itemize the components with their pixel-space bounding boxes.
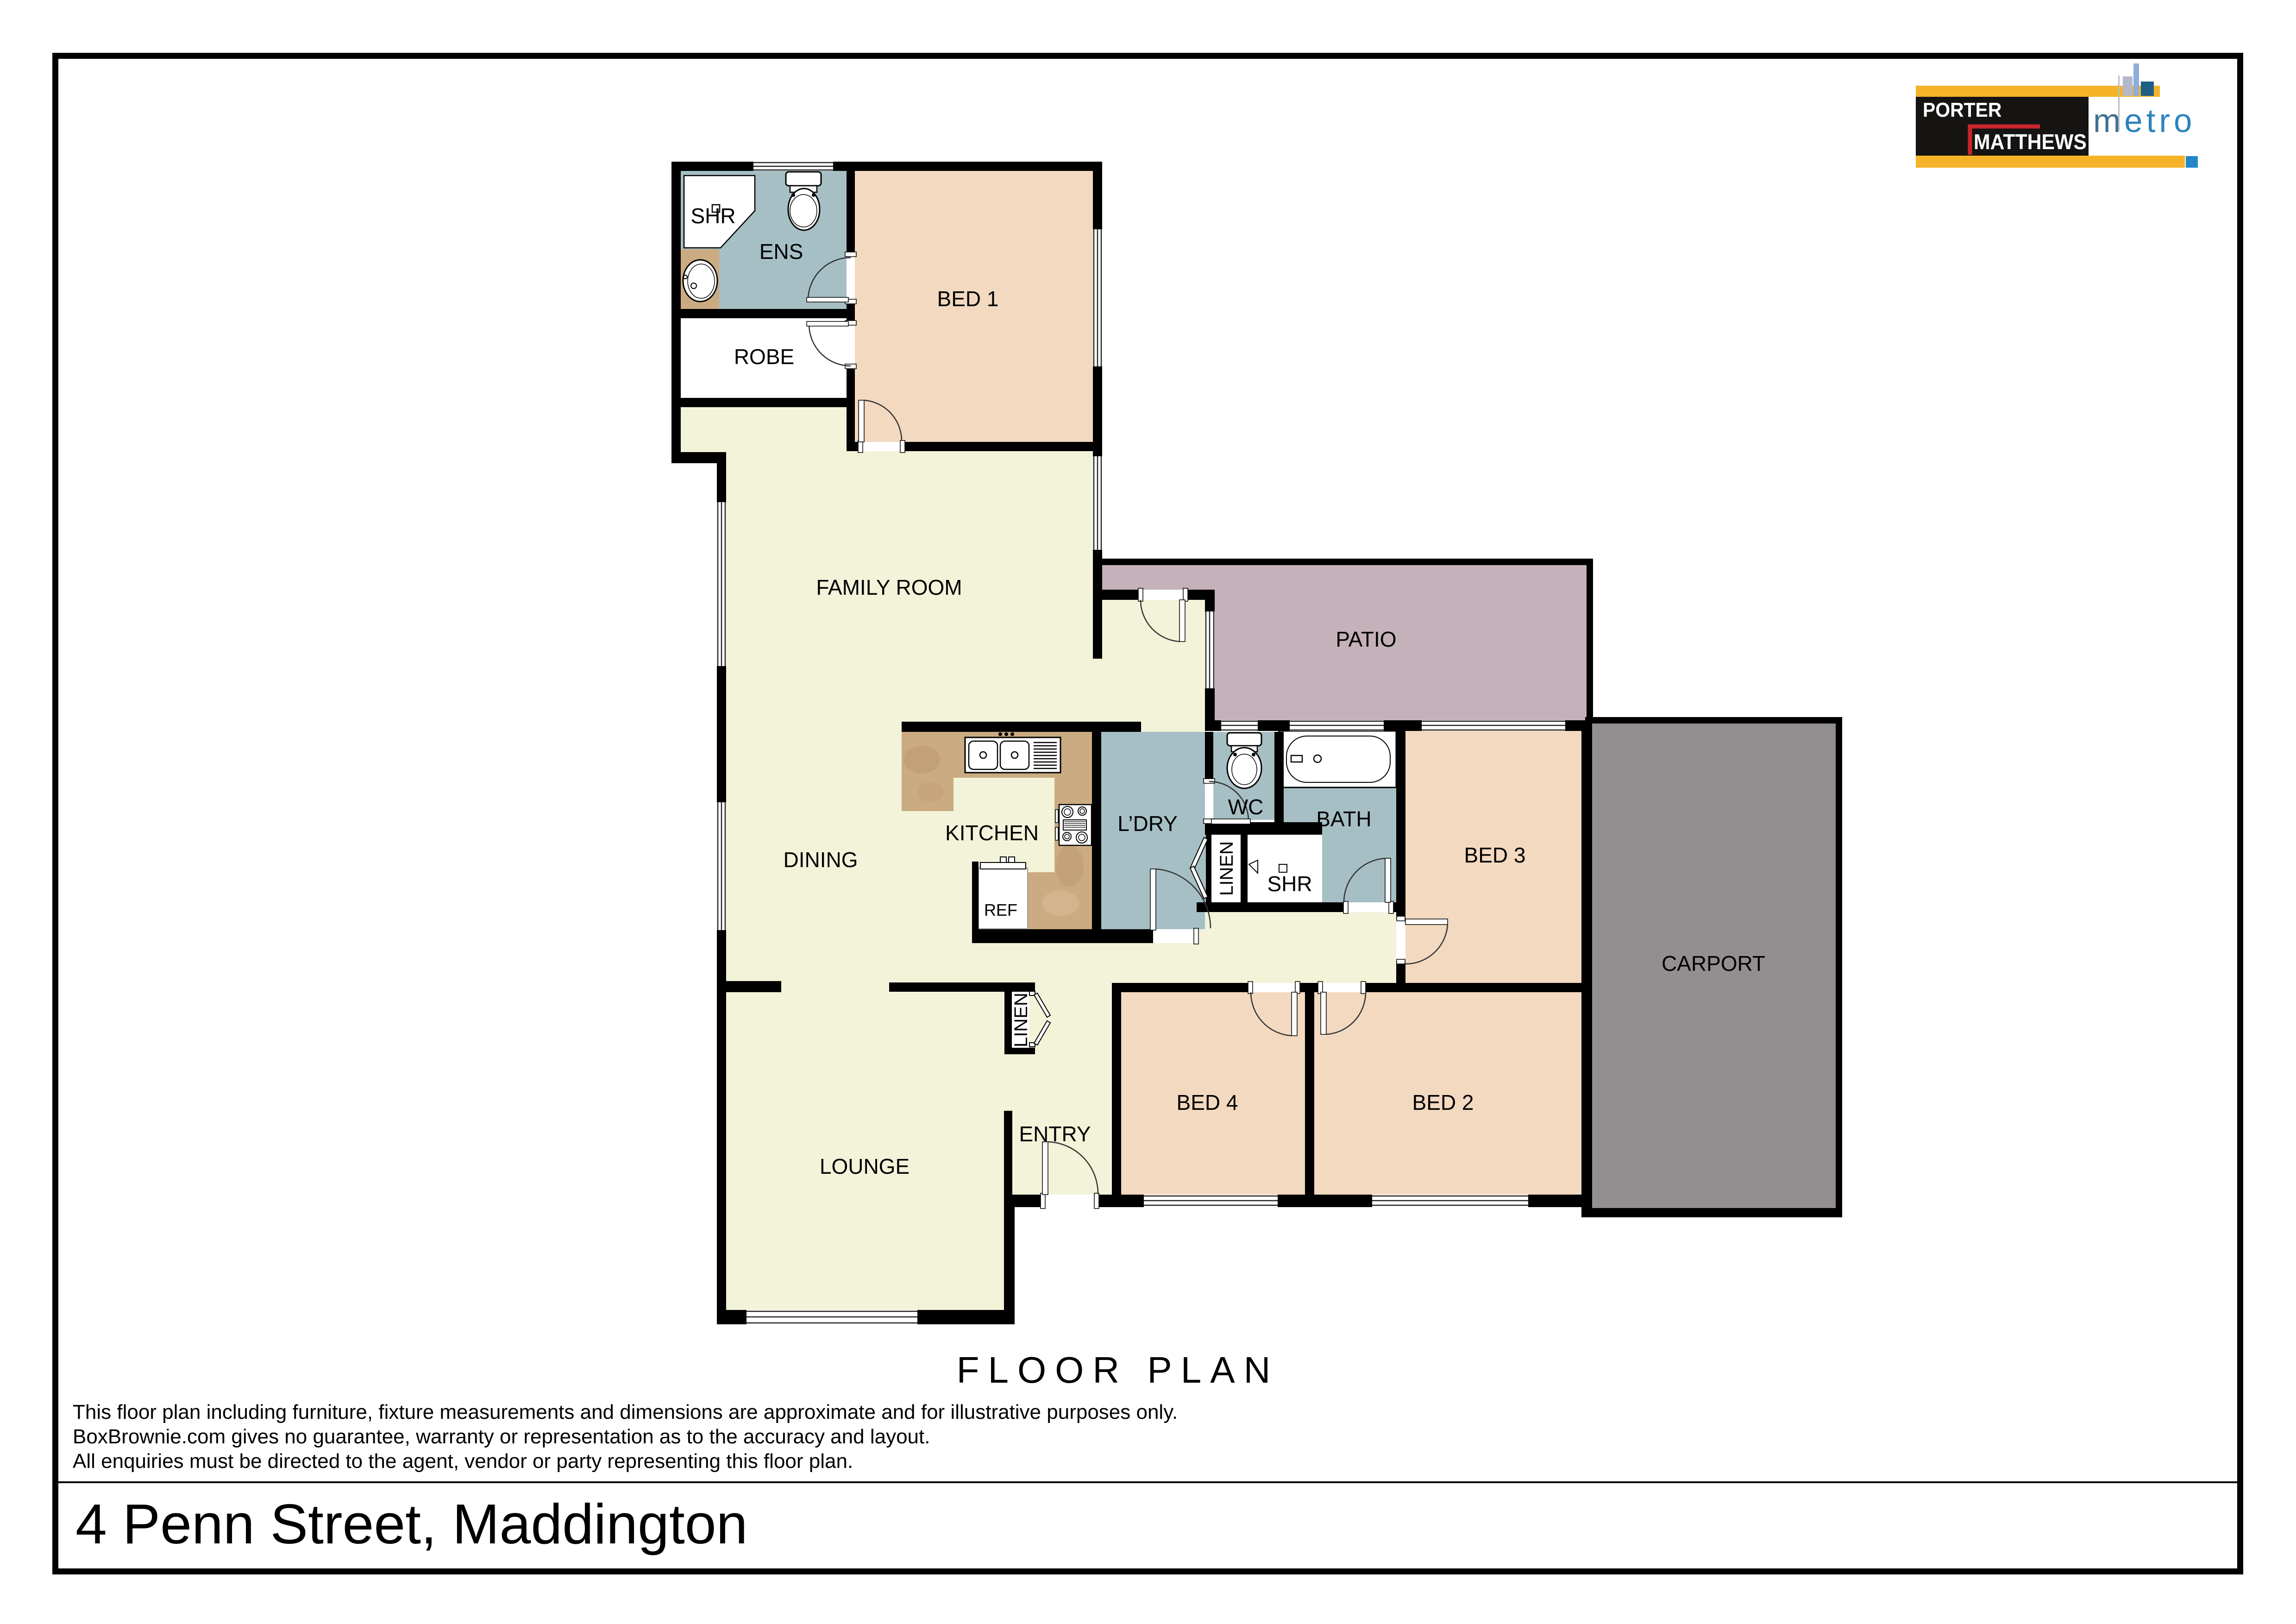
svg-text:L’DRY: L’DRY — [1117, 812, 1178, 836]
svg-text:LINEN: LINEN — [1217, 841, 1237, 896]
svg-text:BATH: BATH — [1316, 807, 1371, 831]
svg-text:KITCHEN: KITCHEN — [945, 821, 1039, 845]
svg-text:SHR: SHR — [690, 204, 735, 228]
svg-text:FAMILY ROOM: FAMILY ROOM — [816, 575, 962, 599]
svg-text:FLOOR PLAN: FLOOR PLAN — [957, 1349, 1280, 1391]
svg-text:BED 4: BED 4 — [1177, 1090, 1238, 1114]
svg-text:BoxBrownie.com gives no guaran: BoxBrownie.com gives no guarantee, warra… — [73, 1425, 930, 1448]
svg-text:MATTHEWS: MATTHEWS — [1974, 131, 2087, 154]
svg-text:DINING: DINING — [784, 848, 858, 872]
svg-text:LINEN: LINEN — [1011, 993, 1031, 1047]
svg-text:BED 1: BED 1 — [937, 287, 999, 311]
svg-text:LOUNGE: LOUNGE — [820, 1154, 910, 1178]
svg-text:BED 2: BED 2 — [1412, 1090, 1474, 1114]
svg-text:CARPORT: CARPORT — [1662, 951, 1765, 976]
svg-text:WC: WC — [1228, 795, 1264, 819]
svg-text:PORTER: PORTER — [1923, 99, 2001, 122]
svg-text:metro: metro — [2093, 103, 2196, 139]
svg-text:This floor plan including furn: This floor plan including furniture, fix… — [73, 1401, 1178, 1423]
svg-text:ROBE: ROBE — [734, 345, 794, 369]
svg-text:BED 3: BED 3 — [1464, 843, 1526, 867]
svg-text:SHR: SHR — [1267, 872, 1312, 896]
svg-text:All enquiries must be directed: All enquiries must be directed to the ag… — [73, 1450, 853, 1473]
svg-text:ENS: ENS — [759, 239, 803, 264]
svg-text:REF: REF — [984, 900, 1017, 919]
svg-text:4 Penn Street, Maddington: 4 Penn Street, Maddington — [75, 1492, 747, 1555]
svg-text:ENTRY: ENTRY — [1019, 1122, 1091, 1146]
svg-text:PATIO: PATIO — [1336, 627, 1396, 651]
